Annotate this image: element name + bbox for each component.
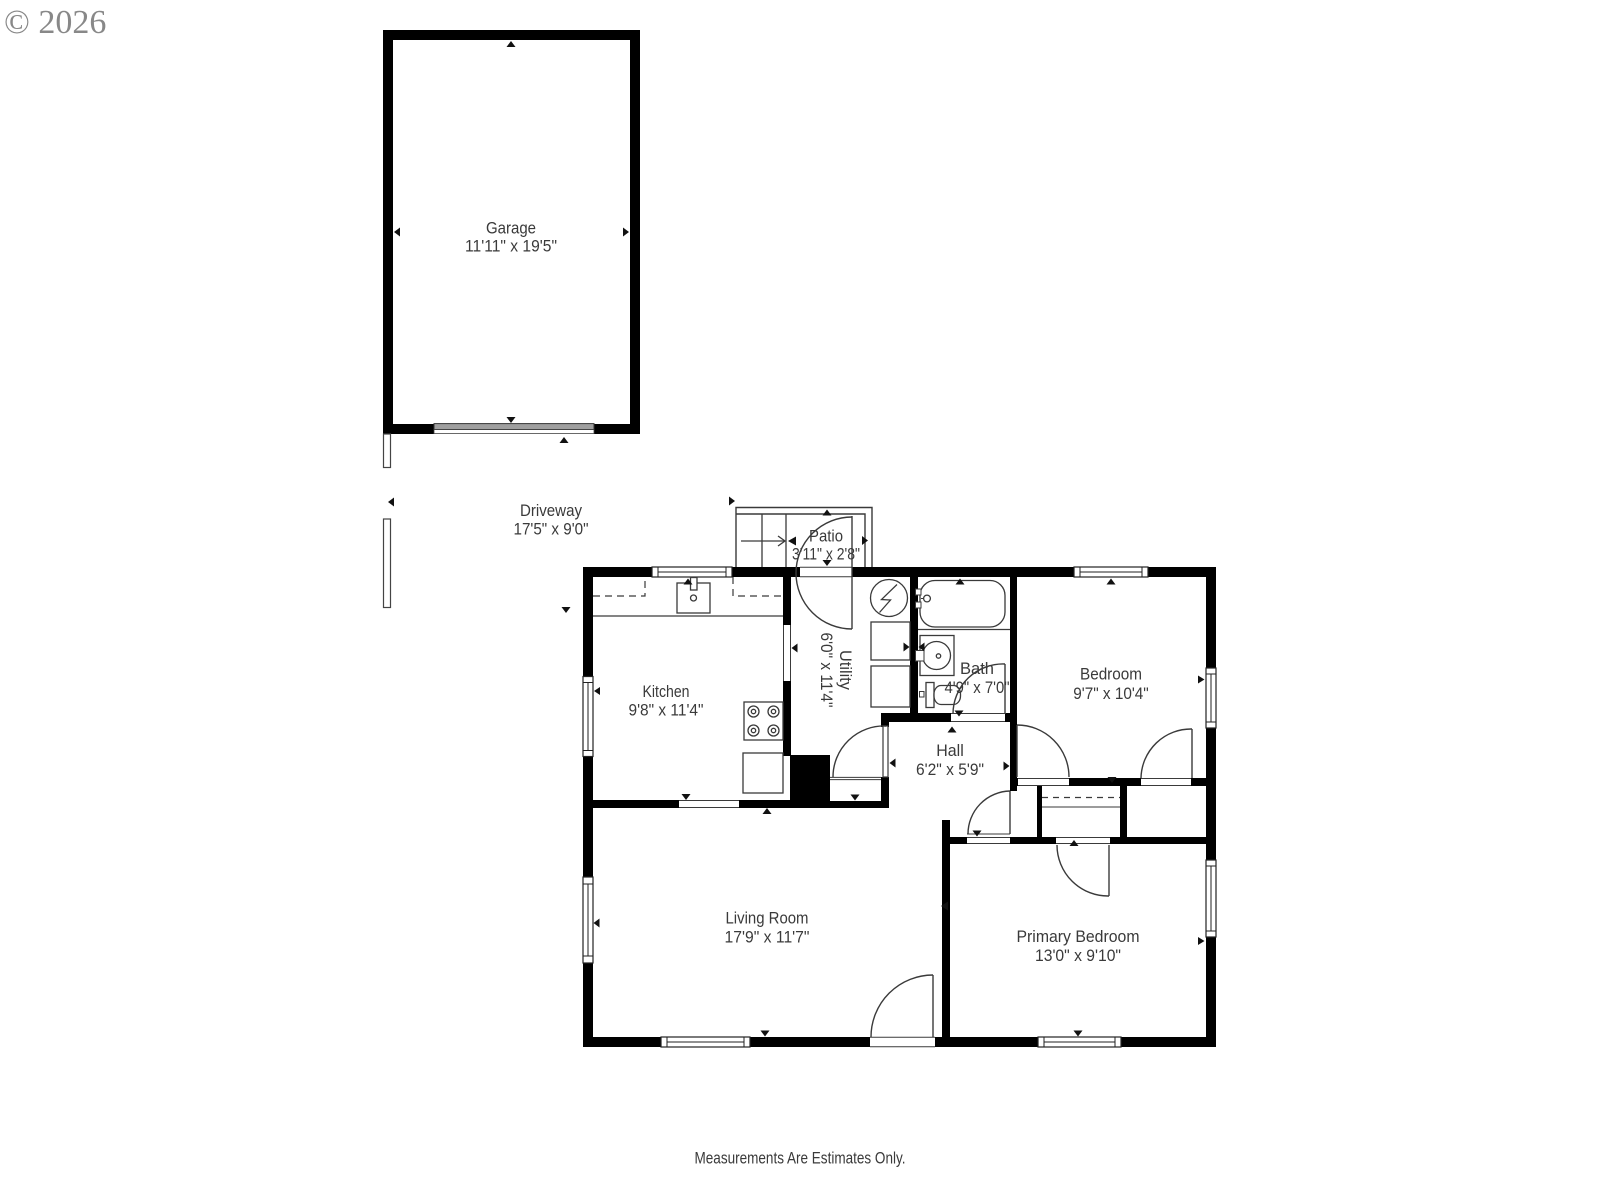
svg-text:Driveway: Driveway [520,501,582,520]
svg-text:11'11" x 19'5": 11'11" x 19'5" [465,237,557,256]
svg-text:Utility: Utility [836,650,855,690]
svg-text:Patio: Patio [809,527,843,546]
svg-text:Living Room: Living Room [726,909,809,928]
svg-text:13'0" x 9'10": 13'0" x 9'10" [1035,946,1121,965]
svg-text:© 2026: © 2026 [4,4,106,41]
svg-text:6'0" x 11'4": 6'0" x 11'4" [817,633,836,708]
svg-text:9'7" x 10'4": 9'7" x 10'4" [1073,684,1149,703]
svg-text:Hall: Hall [936,741,964,760]
svg-text:9'8" x 11'4": 9'8" x 11'4" [629,701,704,720]
svg-text:17'9" x 11'7": 17'9" x 11'7" [725,928,810,947]
svg-text:4'9" x 7'0": 4'9" x 7'0" [945,678,1010,697]
svg-text:Bath: Bath [960,659,994,678]
svg-text:Kitchen: Kitchen [643,682,690,701]
svg-text:Bedroom: Bedroom [1080,665,1142,684]
svg-text:Garage: Garage [486,219,536,238]
svg-text:Measurements Are Estimates Onl: Measurements Are Estimates Only. [695,1149,906,1168]
svg-text:6'2" x 5'9": 6'2" x 5'9" [916,760,984,779]
svg-text:Primary Bedroom: Primary Bedroom [1017,927,1140,946]
svg-text:17'5" x 9'0": 17'5" x 9'0" [514,520,589,539]
